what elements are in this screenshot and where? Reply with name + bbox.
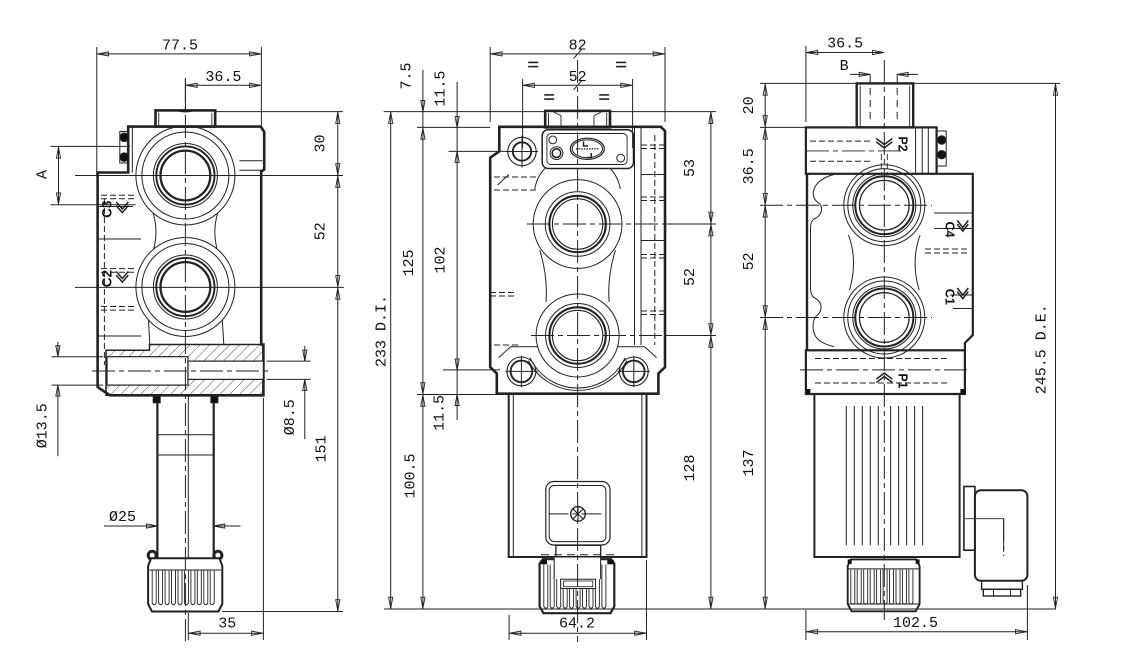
svg-text:B: B [840,58,849,75]
svg-text:30: 30 [313,134,330,152]
svg-text:11.5: 11.5 [431,395,448,431]
svg-text:52: 52 [741,252,758,270]
svg-text:A: A [34,170,51,179]
svg-text:52: 52 [313,222,330,240]
svg-text:52: 52 [569,69,587,86]
svg-text:36.5: 36.5 [205,69,241,86]
svg-text:245.5 D.E.: 245.5 D.E. [1034,304,1051,394]
svg-text:Ø25: Ø25 [109,509,136,526]
svg-text:P2: P2 [896,136,910,151]
svg-text:128: 128 [682,454,699,481]
svg-text:151: 151 [314,435,331,462]
svg-text:77.5: 77.5 [162,38,198,55]
svg-text:53: 53 [682,159,699,177]
svg-text:100.5: 100.5 [403,453,420,498]
svg-text:Ø8.5: Ø8.5 [282,399,299,435]
svg-text:P1: P1 [896,373,910,388]
svg-text:C3: C3 [100,200,115,218]
svg-text:35: 35 [218,616,236,633]
svg-text:36.5: 36.5 [827,36,863,53]
svg-text:7.5: 7.5 [398,62,415,89]
svg-text:Ø13.5: Ø13.5 [34,403,51,448]
svg-text:C2: C2 [100,270,115,287]
svg-text:36.5: 36.5 [741,148,758,184]
svg-text:102.5: 102.5 [893,615,938,632]
svg-text:52: 52 [682,268,699,286]
svg-text:20: 20 [741,96,758,114]
svg-text:64.2: 64.2 [559,616,595,633]
svg-text:137: 137 [741,449,758,476]
svg-text:11.5: 11.5 [433,71,450,107]
svg-text:C1: C1 [943,289,957,305]
svg-text:125: 125 [401,249,418,276]
svg-text:233 D.I.: 233 D.I. [374,295,391,367]
svg-text:102: 102 [433,246,450,273]
svg-text:82: 82 [569,38,587,55]
svg-text:C4: C4 [943,222,957,238]
